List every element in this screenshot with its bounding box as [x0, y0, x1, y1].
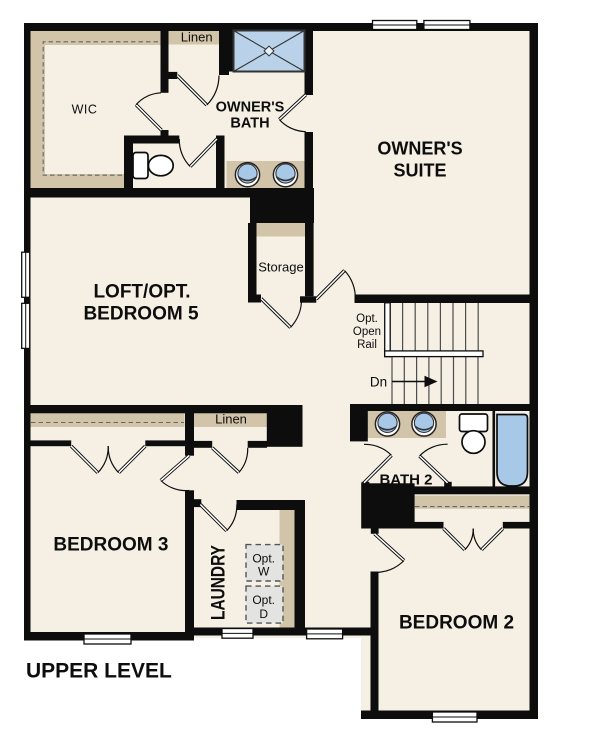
svg-text:OWNER'S: OWNER'S: [216, 100, 285, 116]
svg-text:UPPER LEVEL: UPPER LEVEL: [26, 660, 172, 683]
svg-text:W: W: [258, 565, 270, 579]
svg-text:LOFT/OPT.: LOFT/OPT.: [93, 282, 190, 303]
svg-text:OWNER'S: OWNER'S: [377, 139, 462, 159]
svg-text:Open: Open: [353, 326, 381, 338]
svg-text:Opt.: Opt.: [252, 593, 275, 607]
svg-text:SUITE: SUITE: [393, 161, 446, 181]
svg-text:Linen: Linen: [181, 29, 213, 44]
svg-text:BEDROOM 3: BEDROOM 3: [53, 535, 168, 556]
svg-text:Linen: Linen: [215, 412, 247, 427]
svg-text:Opt.: Opt.: [252, 551, 275, 565]
svg-text:Dn: Dn: [370, 375, 387, 390]
svg-text:Storage: Storage: [258, 260, 304, 275]
svg-text:BEDROOM 2: BEDROOM 2: [399, 613, 514, 634]
svg-text:Opt.: Opt.: [356, 313, 378, 325]
svg-text:D: D: [259, 607, 268, 621]
svg-text:BEDROOM 5: BEDROOM 5: [83, 304, 199, 325]
svg-text:WIC: WIC: [72, 103, 98, 117]
svg-text:LAUNDRY: LAUNDRY: [209, 545, 230, 620]
svg-text:BATH 2: BATH 2: [379, 472, 432, 489]
svg-text:Rail: Rail: [357, 339, 377, 351]
svg-text:BATH: BATH: [230, 116, 269, 132]
